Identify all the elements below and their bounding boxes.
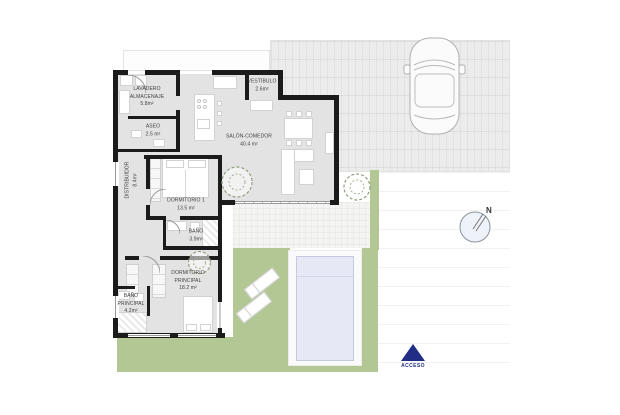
room-name: DISTRIBUIDOR xyxy=(125,161,131,198)
room-name: ASEO xyxy=(146,124,160,130)
room-area: 2.5 m² xyxy=(146,131,161,138)
room-area: 5.8m² xyxy=(130,101,164,108)
dining-chair xyxy=(286,111,292,117)
room-name: DORMITORIO PRINCIPAL xyxy=(171,270,204,283)
room-area: 13.5 m² xyxy=(167,205,205,212)
door-opening xyxy=(175,96,181,110)
north-label: N xyxy=(486,206,492,215)
wall xyxy=(330,200,339,205)
room-label-lavadero: LAVADERO ALMACENAJE 5.8m² xyxy=(130,79,164,115)
wall xyxy=(144,155,222,159)
room-name: BAÑO xyxy=(189,229,204,235)
room-name: DORMITORIO 1 xyxy=(167,198,205,204)
room-area: 18.2 m² xyxy=(171,285,204,292)
car-top-view-icon xyxy=(402,35,467,137)
room-label-distribuidor: DISTRIBUIDOR 8.4m² xyxy=(118,161,147,198)
room-name: VESTÍBULO xyxy=(248,79,277,85)
room-label-bano: BAÑO 3.9m² xyxy=(189,222,204,251)
storage-unit xyxy=(119,90,130,114)
room-label-aseo: ASEO 2.5 m² xyxy=(146,117,161,146)
hob-burner xyxy=(197,99,201,103)
room-area: 40.4 m² xyxy=(226,141,272,148)
dining-chair xyxy=(296,111,302,117)
room-label-bano-principal: BAÑO PRINCIPAL 4.2m² xyxy=(118,286,145,322)
kitchen-sink xyxy=(197,119,210,129)
porch-strip xyxy=(123,50,270,71)
room-area: 3.9m² xyxy=(189,236,204,243)
stool xyxy=(217,111,222,116)
window xyxy=(128,334,170,337)
wall xyxy=(125,256,139,260)
room-name: SALÓN-COMEDOR xyxy=(226,134,272,140)
armchair xyxy=(299,169,314,185)
room-area: 8.4m² xyxy=(132,161,139,198)
lawn-right xyxy=(362,248,378,372)
pillow xyxy=(188,160,206,168)
dining-chair xyxy=(286,140,292,146)
floor-plan: N ACCESO LAVADERO ALMACENAJE 5.8m² ASEO … xyxy=(0,0,620,415)
wall xyxy=(118,149,176,152)
wall xyxy=(147,286,150,316)
door-arc xyxy=(150,189,166,205)
room-label-salon: SALÓN-COMEDOR 40.4 m² xyxy=(226,127,272,156)
wall xyxy=(145,70,180,75)
tree-icon xyxy=(219,164,255,200)
wall xyxy=(278,95,339,100)
room-name: BAÑO PRINCIPAL xyxy=(118,293,145,306)
pool xyxy=(296,256,354,361)
hob-burner xyxy=(203,99,207,103)
dining-chair xyxy=(296,140,302,146)
glass-door xyxy=(235,201,330,204)
wall xyxy=(334,95,339,205)
pillow xyxy=(200,324,211,331)
room-name: LAVADERO ALMACENAJE xyxy=(130,86,164,99)
terrain-contour-lines xyxy=(378,172,510,372)
access-label: ACCESO xyxy=(401,364,425,369)
access-arrow-icon xyxy=(401,344,425,361)
pillow xyxy=(186,324,197,331)
wall xyxy=(146,159,150,189)
wall xyxy=(176,70,180,152)
tv-unit xyxy=(325,132,334,154)
dining-chair xyxy=(306,111,312,117)
entry-mat xyxy=(250,100,273,111)
room-label-dormitorio1: DORMITORIO 1 13.5 m² xyxy=(167,191,205,220)
terrace xyxy=(233,202,370,248)
dining-table xyxy=(284,118,313,139)
pool-step-line xyxy=(297,276,353,277)
door-arc xyxy=(143,256,160,273)
tree-icon xyxy=(341,171,373,203)
window xyxy=(217,302,223,328)
stool xyxy=(217,121,222,126)
toilet xyxy=(131,130,142,138)
kitchen-counter xyxy=(213,76,237,89)
room-label-vestibulo: VESTÍBULO 2.6m² xyxy=(248,72,277,101)
dining-chair xyxy=(306,140,312,146)
hob-burner xyxy=(203,105,207,109)
room-area: 2.6m² xyxy=(248,86,277,93)
room-area: 4.2m² xyxy=(118,308,145,315)
door-arc xyxy=(166,220,180,234)
hob-burner xyxy=(197,105,201,109)
pillow xyxy=(166,160,184,168)
compass-icon: N xyxy=(455,203,501,249)
sofa xyxy=(281,149,295,195)
stool xyxy=(217,101,222,106)
window xyxy=(178,334,216,337)
wall xyxy=(222,200,235,205)
room-label-dormitorio-principal: DORMITORIO PRINCIPAL 18.2 m² xyxy=(171,263,204,299)
